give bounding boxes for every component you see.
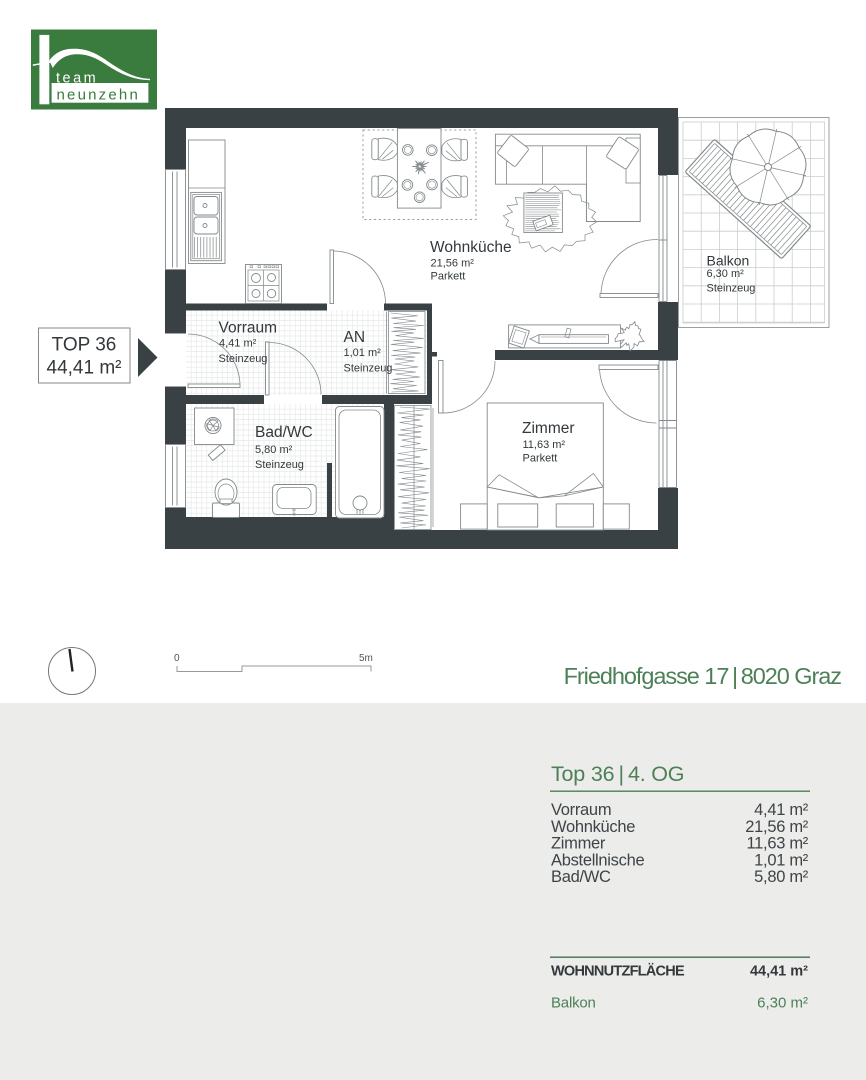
svg-text:Steinzeug: Steinzeug: [344, 363, 393, 375]
svg-text:1,01 m²: 1,01 m²: [754, 851, 809, 869]
svg-text:AN: AN: [344, 329, 366, 346]
svg-text:Parkett: Parkett: [431, 271, 466, 283]
svg-text:4,41 m²: 4,41 m²: [219, 338, 257, 350]
svg-text:WOHNNUTZFLÄCHE: WOHNNUTZFLÄCHE: [551, 963, 685, 980]
svg-text:Steinzeug: Steinzeug: [219, 353, 268, 365]
svg-text:Bad/WC: Bad/WC: [551, 868, 611, 886]
svg-text:Top 36 | 4. OG: Top 36 | 4. OG: [551, 762, 684, 786]
svg-text:44,41 m²: 44,41 m²: [47, 358, 122, 379]
svg-text:21,56 m²: 21,56 m²: [431, 258, 475, 270]
svg-text:5,80 m²: 5,80 m²: [255, 444, 293, 456]
svg-text:0: 0: [174, 653, 180, 664]
svg-text:neunzehn: neunzehn: [57, 87, 141, 104]
svg-text:11,63 m²: 11,63 m²: [523, 439, 566, 451]
svg-text:6,30 m²: 6,30 m²: [757, 995, 808, 1012]
svg-text:1,01 m²: 1,01 m²: [344, 347, 382, 359]
svg-text:Balkon: Balkon: [707, 253, 750, 269]
svg-text:5m: 5m: [359, 653, 373, 664]
svg-text:Zimmer: Zimmer: [551, 835, 606, 853]
svg-text:Steinzeug: Steinzeug: [255, 459, 304, 471]
svg-text:TOP 36: TOP 36: [52, 335, 117, 356]
svg-text:Parkett: Parkett: [523, 453, 558, 465]
svg-text:Vorraum: Vorraum: [551, 801, 611, 819]
svg-text:Friedhofgasse 17 | 8020 Graz: Friedhofgasse 17 | 8020 Graz: [564, 663, 842, 689]
svg-text:44,41 m²: 44,41 m²: [750, 964, 808, 980]
svg-text:4,41 m²: 4,41 m²: [754, 801, 809, 819]
svg-text:Wohnküche: Wohnküche: [430, 239, 512, 256]
svg-text:Abstellnische: Abstellnische: [551, 851, 644, 869]
svg-text:Wohnküche: Wohnküche: [551, 818, 635, 836]
svg-text:21,56 m²: 21,56 m²: [745, 818, 809, 836]
svg-text:Vorraum: Vorraum: [219, 320, 278, 337]
svg-text:5,80 m²: 5,80 m²: [754, 868, 809, 886]
svg-text:6,30 m²: 6,30 m²: [707, 268, 745, 280]
svg-text:Zimmer: Zimmer: [522, 420, 575, 437]
svg-text:Balkon: Balkon: [551, 995, 596, 1012]
svg-text:Bad/WC: Bad/WC: [255, 424, 313, 441]
svg-text:Steinzeug: Steinzeug: [707, 283, 756, 295]
svg-text:11,63 m²: 11,63 m²: [747, 835, 809, 853]
